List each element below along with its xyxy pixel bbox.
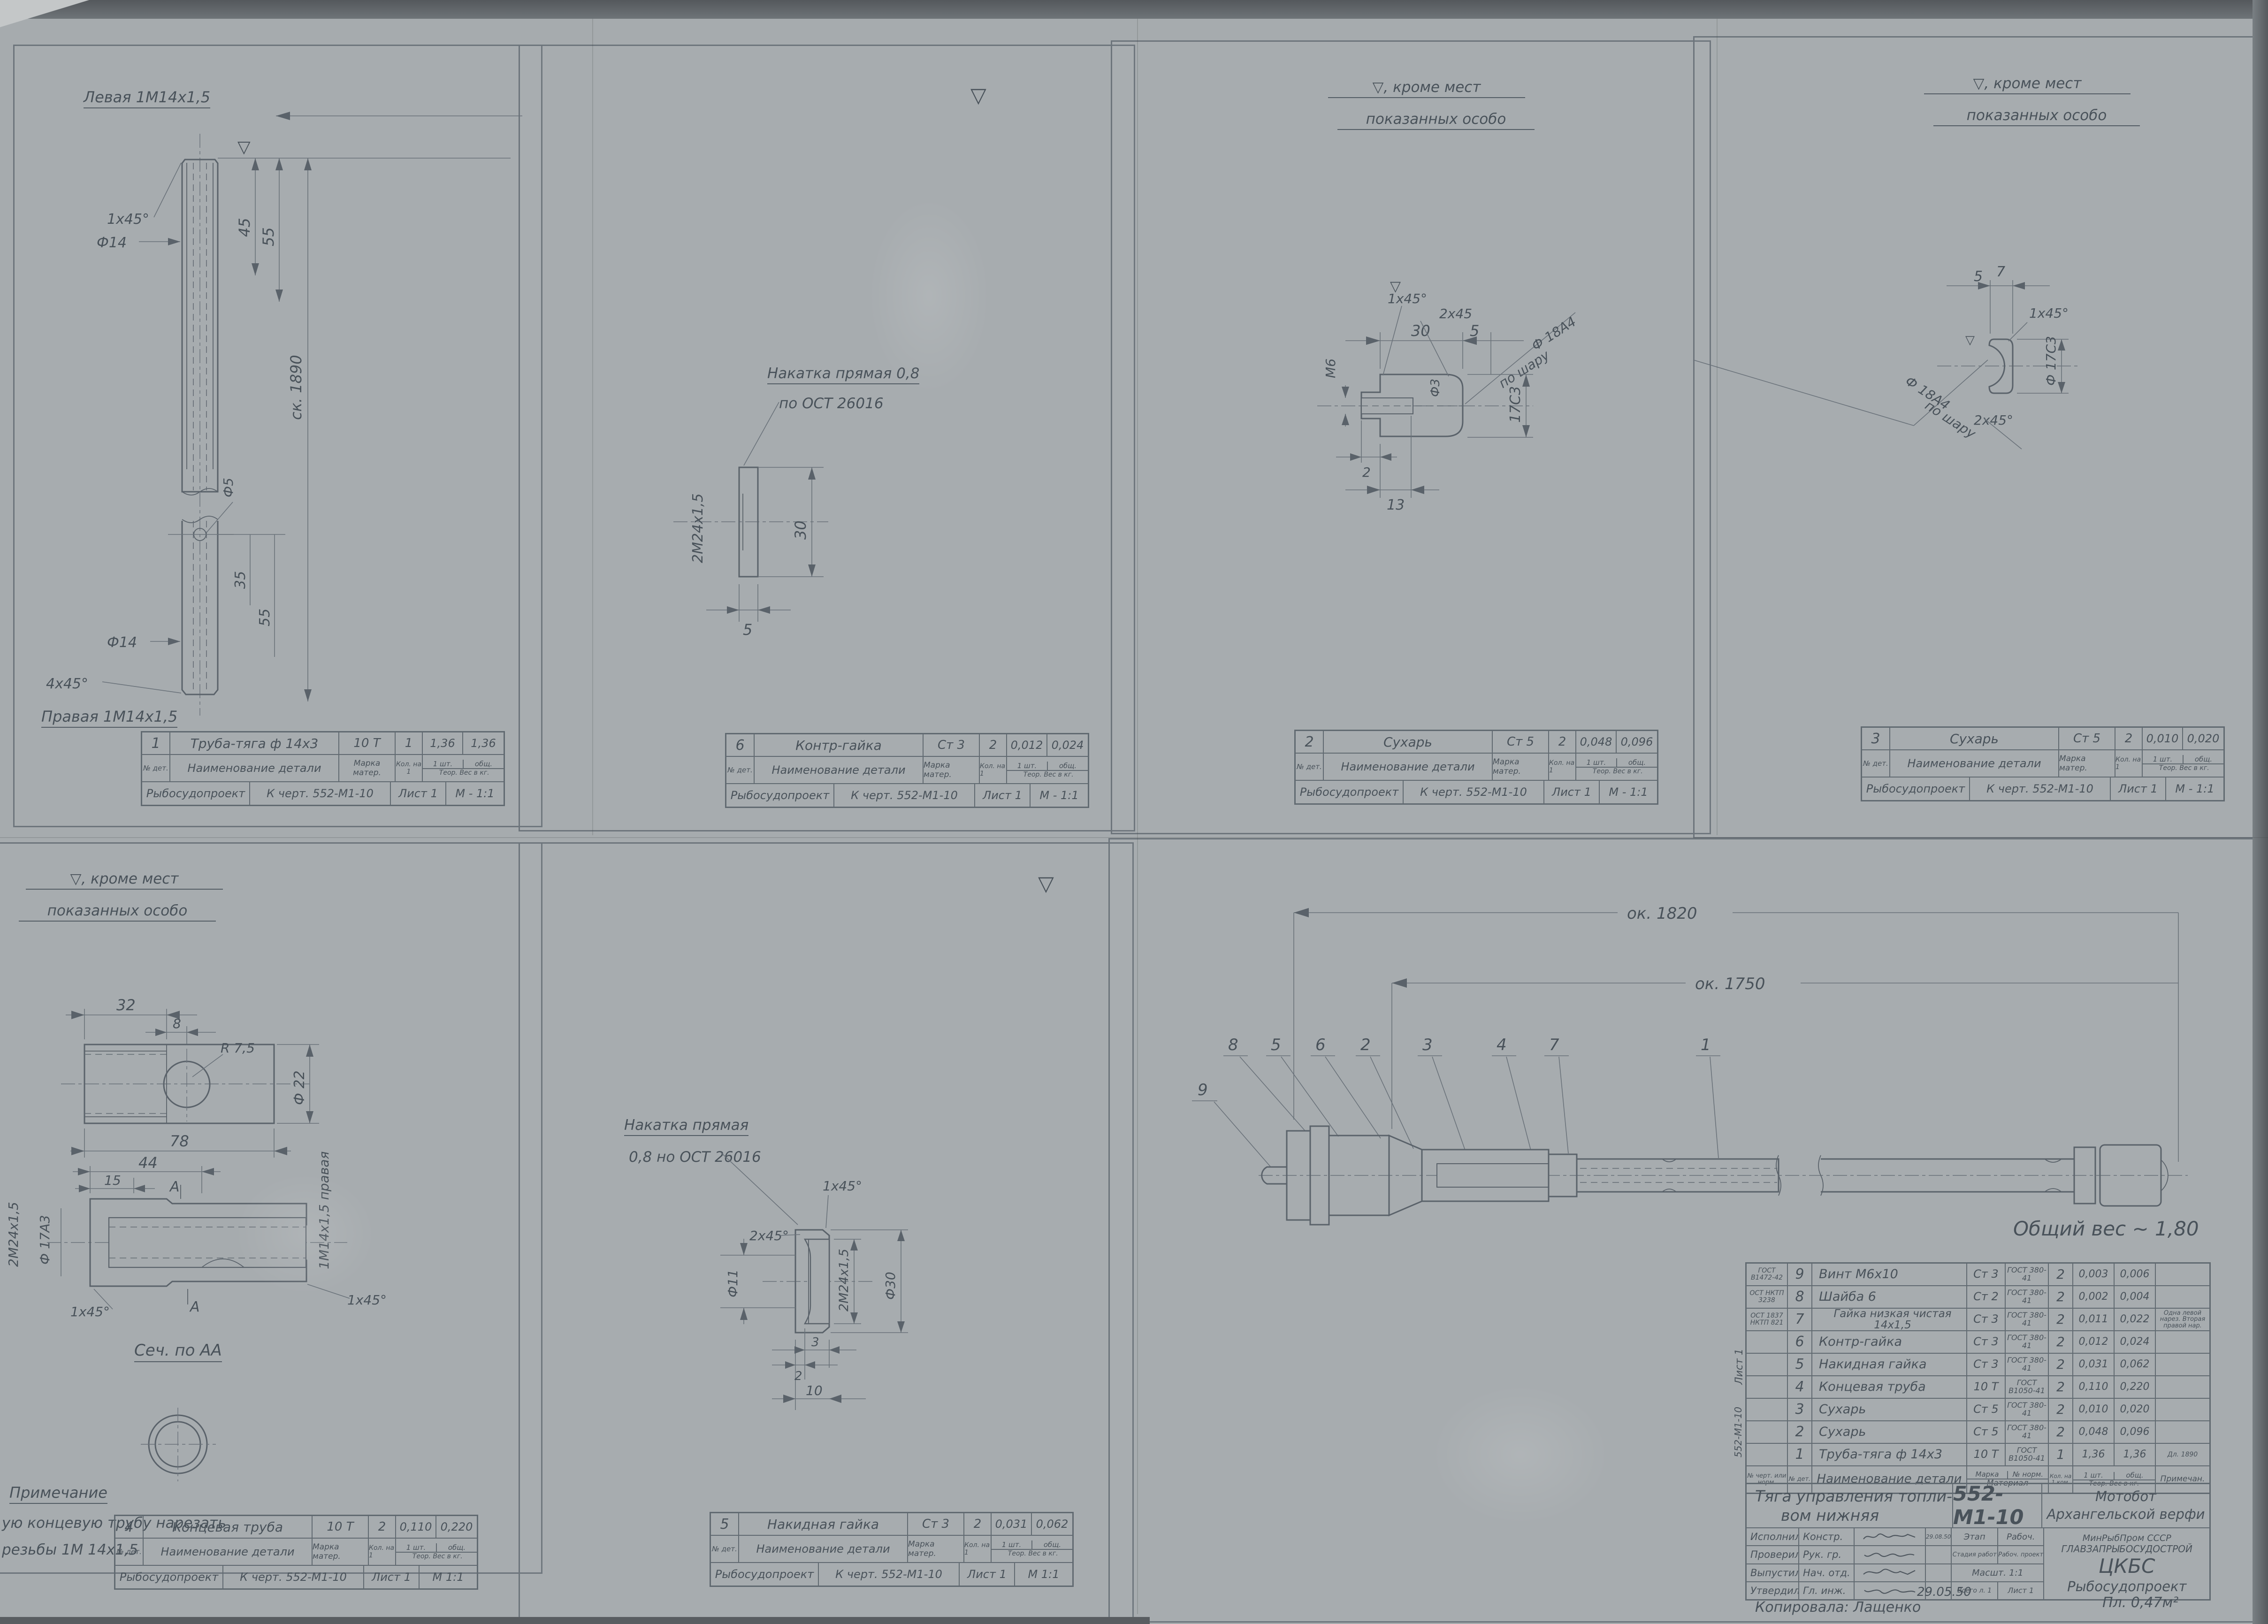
svg-text:5: 5 — [743, 621, 752, 639]
fold-crease-v1 — [592, 19, 593, 835]
svg-text:44: 44 — [138, 1154, 158, 1172]
svg-text:3: 3 — [1422, 1036, 1433, 1054]
svg-text:2: 2 — [794, 1369, 802, 1383]
svg-text:Ф3: Ф3 — [1428, 379, 1443, 397]
sheet-area: Пл. 0,47м² — [2102, 1594, 2178, 1611]
signature — [1862, 1585, 1918, 1597]
svg-text:2М24х1,5: 2М24х1,5 — [6, 1202, 21, 1267]
svg-text:ск. 1890: ск. 1890 — [287, 355, 305, 420]
copied-by: Копировала: Лащенко — [1755, 1599, 1921, 1616]
svg-text:2М24х1,5: 2М24х1,5 — [837, 1249, 851, 1311]
part-title-block-4: 3 Сухарь Ст 5 2 0,010 0,020 № дет. Наиме… — [1861, 726, 2225, 801]
svg-text:R 7,5: R 7,5 — [221, 1040, 255, 1056]
svg-text:М6: М6 — [1323, 358, 1338, 378]
svg-text:ок. 1820: ок. 1820 — [1627, 904, 1697, 923]
svg-text:7: 7 — [1996, 264, 2005, 280]
svg-text:2х45°: 2х45° — [749, 1228, 789, 1243]
svg-text:2: 2 — [1360, 1036, 1371, 1054]
surface-finish-icon: ▽ — [1965, 333, 1975, 347]
svg-text:45: 45 — [236, 218, 253, 237]
block-drawing-det2: 30 5 2х45 1х45° М6 Ф3 Ф 18А4 по шару ▽ 1… — [1111, 40, 1708, 831]
rod-drawing: ▽ 45 55 ск. 1890 35 55 1х45° Ф14 Ф5 Ф14 … — [13, 45, 540, 824]
svg-text:1х45°: 1х45° — [347, 1292, 387, 1308]
svg-text:Ф30: Ф30 — [883, 1272, 898, 1300]
svg-text:Ф5: Ф5 — [221, 478, 236, 497]
svg-text:15: 15 — [104, 1173, 121, 1188]
signature — [1862, 1531, 1918, 1543]
project-name: Мотобот Архангельской верфи — [2042, 1484, 2209, 1527]
svg-text:1: 1 — [1701, 1036, 1711, 1054]
svg-text:4: 4 — [1497, 1036, 1507, 1054]
svg-text:Ф 17А3: Ф 17А3 — [37, 1215, 53, 1265]
fold-crease-v2 — [1137, 19, 1138, 1614]
parts-list: ГОСТ В1472-42 9 Винт М6х10 Ст 3 ГОСТ 380… — [1745, 1262, 2211, 1494]
svg-text:6: 6 — [1315, 1036, 1326, 1054]
part-title-block-1: 1 Труба-тяга ф 14х3 10 Т 1 1,36 1,36 № д… — [141, 731, 505, 806]
svg-text:А: А — [189, 1299, 200, 1315]
svg-text:1х45°: 1х45° — [107, 211, 149, 228]
svg-text:Ф 18А4: Ф 18А4 — [1529, 314, 1579, 354]
svg-text:2х45: 2х45 — [1439, 306, 1472, 321]
copy-date: 29.05.50 — [1917, 1585, 1971, 1599]
svg-text:4х45°: 4х45° — [46, 676, 88, 692]
parts-row-9: ГОСТ В1472-42 9 Винт М6х10 Ст 3 ГОСТ 380… — [1747, 1264, 2209, 1286]
svg-text:3: 3 — [811, 1335, 819, 1350]
svg-text:13: 13 — [1387, 497, 1405, 513]
svg-text:10: 10 — [806, 1383, 823, 1398]
svg-text:30: 30 — [1411, 322, 1430, 340]
fold-crease-h1 — [0, 837, 2268, 838]
part-title-block-6: 5 Накидная гайка Ст 3 2 0,031 0,062 № де… — [710, 1512, 1074, 1587]
svg-text:ок. 1750: ок. 1750 — [1695, 975, 1765, 993]
paper-stain — [868, 197, 990, 394]
svg-text:55: 55 — [257, 609, 273, 626]
svg-text:1х45°: 1х45° — [823, 1178, 862, 1194]
parts-row-1: 1 Труба-тяга ф 14х3 10 Т ГОСТ В1050-41 1… — [1747, 1444, 2209, 1466]
parts-row-6: 6 Контр-гайка Ст 3 ГОСТ 380-41 2 0,012 0… — [1747, 1331, 2209, 1354]
paper-stain — [1431, 1384, 1610, 1525]
svg-text:1х45°: 1х45° — [70, 1304, 110, 1319]
signature — [1862, 1548, 1918, 1561]
surface-finish-icon: ▽ — [1390, 278, 1401, 295]
svg-text:5: 5 — [1470, 322, 1479, 340]
parts-row-4: 4 Концевая труба 10 Т ГОСТ В1050-41 2 0,… — [1747, 1376, 2209, 1399]
paper-edge-right — [2253, 0, 2268, 1624]
svg-text:78: 78 — [170, 1132, 189, 1150]
svg-text:1х45°: 1х45° — [2029, 305, 2069, 321]
parts-list-side-label-bottom: 552-М1-10 — [1733, 1407, 1744, 1457]
svg-text:35: 35 — [232, 571, 249, 589]
svg-text:17С3: 17С3 — [1507, 386, 1524, 423]
svg-text:2: 2 — [1362, 465, 1371, 480]
svg-text:по шару: по шару — [1922, 397, 1978, 442]
parts-row-2: 2 Сухарь Ст 5 ГОСТ 380-41 2 0,048 0,096 — [1747, 1421, 2209, 1444]
locknut-drawing: 2М24х1,5 30 5 — [519, 45, 1132, 829]
svg-text:5: 5 — [1271, 1036, 1281, 1054]
svg-text:7: 7 — [1549, 1036, 1559, 1054]
block-drawing-det3: 5 7 1х45° Ф 18А4 по шару ▽ 2х45° Ф 17С3 — [1693, 36, 2253, 836]
svg-text:9: 9 — [1198, 1081, 1208, 1099]
surface-finish-icon: ▽ — [237, 137, 251, 157]
svg-text:Ф14: Ф14 — [107, 634, 137, 651]
signature — [1862, 1567, 1918, 1579]
svg-text:Ф14: Ф14 — [97, 235, 127, 251]
svg-text:30: 30 — [792, 520, 809, 540]
svg-text:А: А — [169, 1179, 180, 1195]
paper-edge-top — [0, 0, 2268, 19]
svg-text:2М24х1,5: 2М24х1,5 — [690, 493, 706, 563]
svg-text:Ф11: Ф11 — [725, 1269, 741, 1297]
svg-text:8: 8 — [173, 1016, 181, 1031]
union-nut-drawing: 1х45° 2х45° Ф11 2М24х1,5 Ф30 3 2 10 — [519, 842, 1131, 1616]
svg-text:5: 5 — [1974, 268, 1983, 285]
assembly-total-weight: Общий вес ~ 1,80 — [2013, 1217, 2199, 1240]
svg-text:Ф 22: Ф 22 — [291, 1070, 308, 1105]
svg-text:55: 55 — [260, 227, 277, 246]
paper-edge-bottom — [0, 1617, 1150, 1624]
main-title-block: Тяга управления топли- вом нижняя 552-М1… — [1745, 1483, 2211, 1601]
svg-text:Ф 17С3: Ф 17С3 — [2043, 336, 2059, 386]
blueprint-sheet: Левая 1М14х1,5 Правая 1М14х1,5 ▽ 45 55 с… — [0, 0, 2268, 1624]
parts-row-7: ОСТ 1837 НКТП 821 7 Гайка низкая чистая … — [1747, 1309, 2209, 1331]
part-title-block-5: 4 Концевая труба 10 Т 2 0,110 0,220 № де… — [114, 1515, 478, 1590]
part-title-block-3: 2 Сухарь Ст 5 2 0,048 0,096 № дет. Наиме… — [1294, 730, 1658, 805]
panel5-section-title: Сеч. по АА — [134, 1341, 222, 1362]
drawing-title: Тяга управления топли- вом нижняя — [1747, 1484, 1953, 1527]
parts-row-5: 5 Накидная гайка Ст 3 ГОСТ 380-41 2 0,03… — [1747, 1354, 2209, 1376]
drawing-number: 552-М1-10 — [1953, 1484, 2042, 1527]
panel5-note-title: Примечание — [9, 1484, 107, 1504]
parts-list-side-label-top: Лист 1 — [1733, 1349, 1745, 1385]
svg-text:2х45°: 2х45° — [1974, 412, 2013, 428]
part-title-block-2: 6 Контр-гайка Ст 3 2 0,012 0,024 № дет. … — [725, 733, 1089, 808]
parts-row-3: 3 Сухарь Ст 5 ГОСТ 380-41 2 0,010 0,020 — [1747, 1399, 2209, 1421]
svg-text:8: 8 — [1228, 1036, 1238, 1054]
organization: МинРыбПром СССР ГЛАВЗАПРЫБОСУДОСТРОЙ ЦКБ… — [2043, 1528, 2209, 1599]
fold-crease-v3 — [1717, 19, 1718, 835]
svg-text:32: 32 — [116, 996, 136, 1014]
paper-stain — [235, 1173, 375, 1295]
parts-row-8: ОСТ НКТП 3238 8 Шайба 6 Ст 2 ГОСТ 380-41… — [1747, 1286, 2209, 1309]
